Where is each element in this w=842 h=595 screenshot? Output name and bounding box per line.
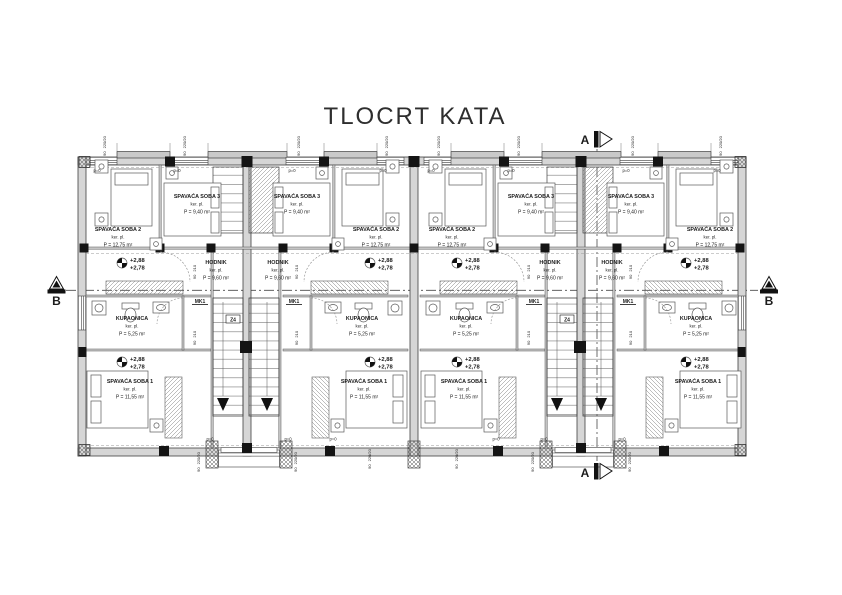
- window: [170, 157, 208, 164]
- svg-text:p=0: p=0: [492, 437, 500, 442]
- room-finish: ker. pl.: [690, 324, 703, 329]
- room-area: P = 9,60 m²: [265, 276, 291, 282]
- svg-text:90210: 90210: [294, 330, 299, 345]
- svg-text:90210: 90210: [526, 264, 531, 279]
- room-area: P = 5,25 m²: [453, 332, 479, 338]
- room-area: P = 12,75 m²: [696, 243, 725, 249]
- room-area: P = 5,25 m²: [683, 332, 709, 338]
- svg-text:90220/20: 90220/20: [182, 135, 187, 155]
- room-label-unit2-hodnik: HODNIK ker. pl. P = 9,60 m²: [265, 260, 291, 282]
- elevation-marker: +2,88+2,78: [681, 258, 709, 272]
- room-finish: ker. pl.: [544, 268, 557, 273]
- room-name: SPAVAĆA SOBA 3: [274, 192, 320, 200]
- window: [78, 296, 85, 330]
- room-finish: ker. pl.: [356, 324, 369, 329]
- room-area: P = 5,25 m²: [349, 332, 375, 338]
- room-label-unit4-hodnik: HODNIK ker. pl. P = 9,60 m²: [599, 260, 625, 282]
- room-area: P = 11,55 m²: [450, 395, 479, 401]
- svg-text:+2,78: +2,78: [465, 365, 480, 371]
- svg-text:+2,88: +2,88: [465, 357, 480, 363]
- room-finish: ker. pl.: [460, 324, 473, 329]
- svg-text:90210: 90210: [294, 264, 299, 279]
- svg-text:90210: 90210: [192, 330, 197, 345]
- room-name: SPAVAĆA SOBA 3: [608, 192, 654, 200]
- entry-door: [250, 448, 277, 453]
- svg-text:+2,88: +2,88: [694, 357, 709, 363]
- room-finish: ker. pl.: [124, 387, 137, 392]
- room-name: KUPAONICA: [346, 316, 378, 322]
- room-name: SPAVAĆA SOBA 2: [353, 225, 399, 233]
- elevation-marker: +2,88+2,78: [452, 258, 480, 272]
- elevation-marker: +2,88+2,78: [117, 258, 145, 272]
- room-label-unit3-kupaonica: KUPAONICA ker. pl. P = 5,25 m²: [450, 316, 482, 338]
- room-area: P = 9,40 m²: [184, 210, 210, 216]
- window: [286, 157, 324, 164]
- room-finish: ker. pl.: [606, 268, 619, 273]
- room-label-unit1-hodnik: HODNIK ker. pl. P = 9,60 m²: [203, 260, 229, 282]
- svg-text:p=0: p=0: [206, 437, 214, 442]
- svg-text:p=0: p=0: [173, 168, 181, 173]
- room-finish: ker. pl.: [112, 235, 125, 240]
- section-letter: B: [52, 294, 61, 308]
- room-name: HODNIK: [539, 260, 560, 266]
- corner-column: [735, 445, 746, 456]
- corner-column: [79, 445, 90, 456]
- svg-text:90220/20: 90220/20: [516, 135, 521, 155]
- bed-icon: [111, 169, 152, 226]
- room-finish: ker. pl.: [126, 324, 139, 329]
- svg-text:p=0: p=0: [288, 168, 296, 173]
- room-label-unit2-soba2: SPAVAĆA SOBA 2 ker. pl. P = 12,75 m²: [353, 225, 399, 249]
- svg-text:p=0: p=0: [284, 437, 292, 442]
- room-name: SPAVAĆA SOBA 1: [107, 377, 153, 385]
- svg-text:+2,78: +2,78: [378, 266, 393, 272]
- svg-text:+2,78: +2,78: [130, 266, 145, 272]
- room-area: P = 11,55 m²: [350, 395, 379, 401]
- room-area: P = 9,60 m²: [537, 276, 563, 282]
- door-swing-arc: [160, 252, 190, 282]
- room-name: SPAVAĆA SOBA 2: [95, 225, 141, 233]
- svg-text:90220/20: 90220/20: [293, 451, 298, 471]
- elevation-marker: +2,88+2,78: [452, 357, 480, 371]
- room-area: P = 9,40 m²: [518, 210, 544, 216]
- nightstand-icon: [150, 419, 163, 432]
- room-area: P = 9,60 m²: [599, 276, 625, 282]
- room-label-unit3-soba2: SPAVAĆA SOBA 2 ker. pl. P = 12,75 m²: [429, 225, 475, 249]
- svg-text:p=0: p=0: [622, 168, 630, 173]
- svg-text:90220/20: 90220/20: [436, 135, 441, 155]
- room-label-unit1-kupaonica: KUPAONICA ker. pl. P = 5,25 m²: [116, 316, 148, 338]
- svg-text:90210: 90210: [628, 330, 633, 345]
- svg-text:+2,88: +2,88: [694, 258, 709, 264]
- svg-text:+2,88: +2,88: [465, 258, 480, 264]
- room-finish: ker. pl.: [446, 235, 459, 240]
- room-name: KUPAONICA: [116, 316, 148, 322]
- room-name: KUPAONICA: [450, 316, 482, 322]
- floor-plan-drawing: TLOCRT KATA: [0, 0, 842, 595]
- room-name: SPAVAĆA SOBA 1: [441, 377, 487, 385]
- room-area: P = 9,40 m²: [284, 210, 310, 216]
- section-letter: A: [581, 466, 590, 480]
- svg-text:p=0: p=0: [507, 168, 515, 173]
- svg-text:p=0: p=0: [93, 168, 101, 173]
- svg-text:+2,78: +2,78: [694, 266, 709, 272]
- svg-text:+2,78: +2,78: [130, 365, 145, 371]
- room-area: P = 5,25 m²: [119, 332, 145, 338]
- room-name: HODNIK: [601, 260, 622, 266]
- room-finish: ker. pl.: [291, 202, 304, 207]
- room-name: SPAVAĆA SOBA 3: [508, 192, 554, 200]
- section-letter: B: [765, 294, 774, 308]
- svg-text:90220/20: 90220/20: [454, 448, 459, 468]
- svg-text:90220/20: 90220/20: [384, 135, 389, 155]
- room-label-unit2-kupaonica: KUPAONICA ker. pl. P = 5,25 m²: [346, 316, 378, 338]
- svg-text:90220/20: 90220/20: [718, 135, 723, 155]
- room-name: HODNIK: [205, 260, 226, 266]
- svg-text:p=0: p=0: [427, 168, 435, 173]
- svg-text:p=0: p=0: [540, 437, 548, 442]
- svg-text:+2,78: +2,78: [465, 266, 480, 272]
- section-marker-a-top: A: [581, 131, 612, 148]
- nightstand-icon: [150, 238, 162, 250]
- room-area: P = 9,40 m²: [618, 210, 644, 216]
- svg-text:+2,88: +2,88: [130, 357, 145, 363]
- svg-text:+2,88: +2,88: [378, 258, 393, 264]
- svg-text:+2,88: +2,88: [130, 258, 145, 264]
- room-name: SPAVAĆA SOBA 1: [341, 377, 387, 385]
- svg-text:90220/20: 90220/20: [630, 135, 635, 155]
- svg-text:p=0: p=0: [379, 168, 387, 173]
- party-wall: [410, 157, 418, 456]
- room-finish: ker. pl.: [210, 268, 223, 273]
- page-title: TLOCRT KATA: [324, 103, 507, 130]
- room-finish: ker. pl.: [692, 387, 705, 392]
- elevation-marker: +2,88+2,78: [117, 357, 145, 371]
- stair-id-label: Z4: [226, 315, 240, 324]
- section-letter: A: [581, 133, 590, 147]
- room-finish: ker. pl.: [191, 202, 204, 207]
- svg-text:90220/20: 90220/20: [296, 135, 301, 155]
- corner-column: [735, 157, 746, 168]
- room-area: P = 12,75 m²: [104, 243, 133, 249]
- room-name: SPAVAĆA SOBA 2: [687, 225, 733, 233]
- svg-text:Z4: Z4: [230, 318, 236, 324]
- svg-text:+2,78: +2,78: [694, 365, 709, 371]
- room-label-unit3-hodnik: HODNIK ker. pl. P = 9,60 m²: [537, 260, 563, 282]
- room-finish: ker. pl.: [358, 387, 371, 392]
- svg-text:+2,78: +2,78: [378, 365, 393, 371]
- room-finish: ker. pl.: [458, 387, 471, 392]
- room-name: SPAVAĆA SOBA 2: [429, 225, 475, 233]
- room-name: HODNIK: [267, 260, 288, 266]
- section-marker-b-right: B: [760, 277, 778, 309]
- room-name: KUPAONICA: [680, 316, 712, 322]
- svg-text:p=0: p=0: [618, 437, 626, 442]
- section-marker-b-left: B: [48, 277, 66, 309]
- svg-text:Z4: Z4: [564, 318, 570, 324]
- svg-text:90220/20: 90220/20: [196, 451, 201, 471]
- elevation-marker: +2,88+2,78: [365, 258, 393, 272]
- svg-text:90210: 90210: [192, 264, 197, 279]
- room-name: SPAVAĆA SOBA 3: [174, 192, 220, 200]
- svg-text:+2,88: +2,88: [378, 357, 393, 363]
- room-area: P = 9,60 m²: [203, 276, 229, 282]
- stair-column: [240, 341, 252, 353]
- svg-text:90220/20: 90220/20: [530, 451, 535, 471]
- room-area: P = 12,75 m²: [362, 243, 391, 249]
- room-finish: ker. pl.: [370, 235, 383, 240]
- wardrobe-icon: [165, 377, 182, 438]
- window: [504, 157, 542, 164]
- room-finish: ker. pl.: [704, 235, 717, 240]
- svg-text:90220/20: 90220/20: [102, 135, 107, 155]
- svg-text:p=0: p=0: [713, 168, 721, 173]
- elevation-marker: +2,88+2,78: [365, 357, 393, 371]
- svg-text:90220/20: 90220/20: [627, 451, 632, 471]
- room-area: P = 11,55 m²: [684, 395, 713, 401]
- svg-text:90220/20: 90220/20: [367, 448, 372, 468]
- svg-text:90210: 90210: [628, 264, 633, 279]
- section-marker-a-bottom: A: [581, 463, 612, 480]
- wardrobe-icon: [106, 281, 183, 294]
- room-label-unit1-soba2: SPAVAĆA SOBA 2 ker. pl. P = 12,75 m²: [95, 225, 141, 249]
- room-finish: ker. pl.: [525, 202, 538, 207]
- stair-id-label: Z4: [560, 315, 574, 324]
- corner-column: [79, 157, 90, 168]
- washer-icon: [92, 301, 106, 315]
- room-name: SPAVAĆA SOBA 1: [675, 377, 721, 385]
- room-finish: ker. pl.: [272, 268, 285, 273]
- dimension-ticks: [117, 143, 711, 151]
- room-label-unit4-soba2: SPAVAĆA SOBA 2 ker. pl. P = 12,75 m²: [687, 225, 733, 249]
- room-finish: ker. pl.: [625, 202, 638, 207]
- window: [620, 157, 658, 164]
- nightstand-icon: [95, 213, 108, 226]
- svg-text:p=0: p=0: [329, 437, 337, 442]
- room-area: P = 11,55 m²: [116, 395, 145, 401]
- elevation-marker: +2,88+2,78: [681, 357, 709, 371]
- room-area: P = 12,75 m²: [438, 243, 467, 249]
- sink-icon: [153, 302, 169, 313]
- window: [738, 296, 745, 330]
- room-label-unit4-kupaonica: KUPAONICA ker. pl. P = 5,25 m²: [680, 316, 712, 338]
- svg-text:90210: 90210: [526, 330, 531, 345]
